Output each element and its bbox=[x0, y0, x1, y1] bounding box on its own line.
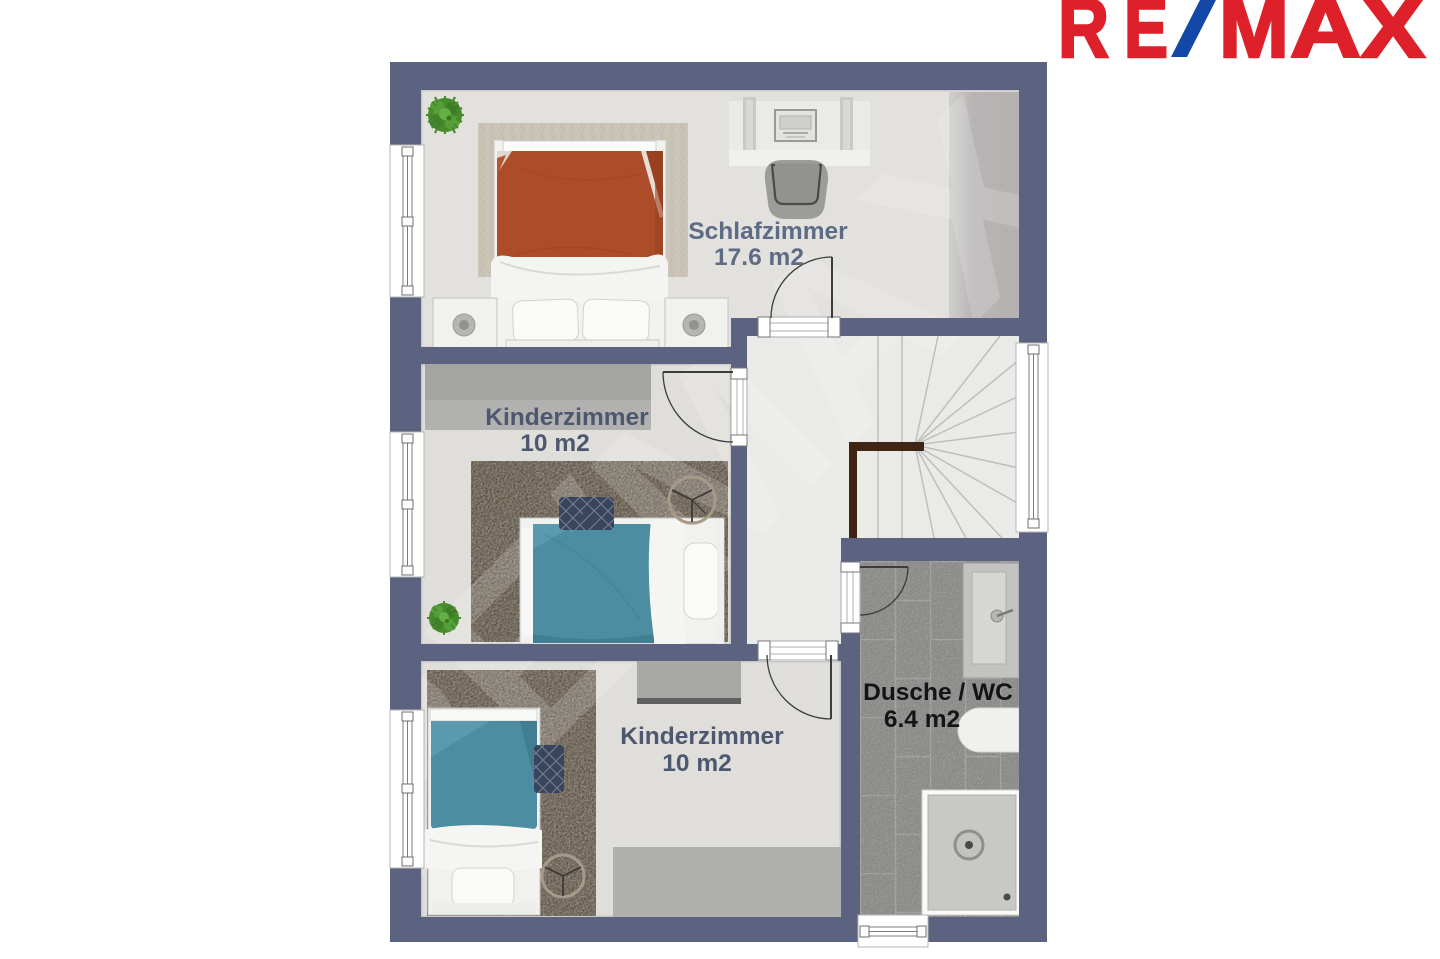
svg-text:R: R bbox=[1058, 0, 1109, 75]
svg-text:Kinderzimmer: Kinderzimmer bbox=[485, 404, 649, 431]
svg-text:Schlafzimmer: Schlafzimmer bbox=[688, 218, 848, 245]
svg-text:10 m2: 10 m2 bbox=[662, 750, 731, 777]
svg-text:Dusche / WC: Dusche / WC bbox=[863, 679, 1013, 706]
svg-text:6.4 m2: 6.4 m2 bbox=[884, 706, 960, 733]
svg-text:10 m2: 10 m2 bbox=[520, 430, 589, 457]
svg-text:Kinderzimmer: Kinderzimmer bbox=[620, 723, 784, 750]
svg-text:M: M bbox=[1219, 0, 1289, 75]
svg-text:A: A bbox=[1290, 0, 1361, 75]
svg-text:17.6 m2: 17.6 m2 bbox=[714, 244, 804, 271]
svg-text:X: X bbox=[1361, 0, 1425, 75]
svg-text:E: E bbox=[1124, 0, 1168, 75]
